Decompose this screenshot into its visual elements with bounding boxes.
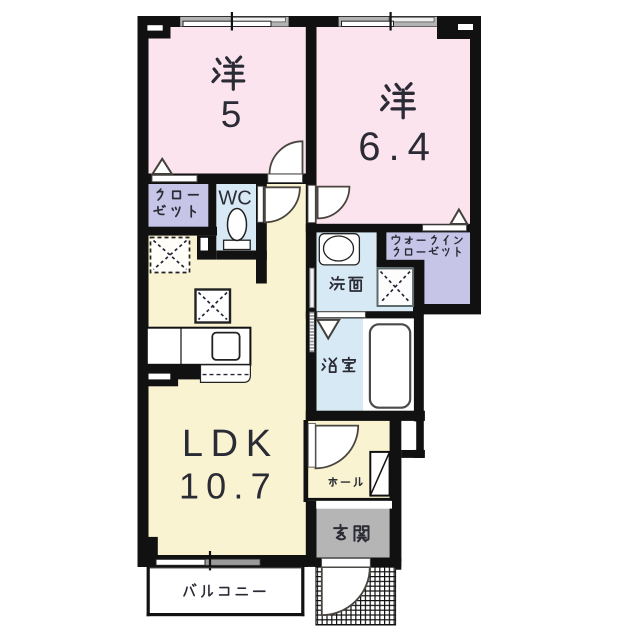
svg-text:6 . 4: 6 . 4 [358,125,430,169]
svg-text:WC: WC [218,188,251,210]
svg-text:5: 5 [221,94,242,135]
svg-text:1 0 . 7: 1 0 . 7 [179,466,271,507]
svg-text:L D K: L D K [182,423,271,465]
